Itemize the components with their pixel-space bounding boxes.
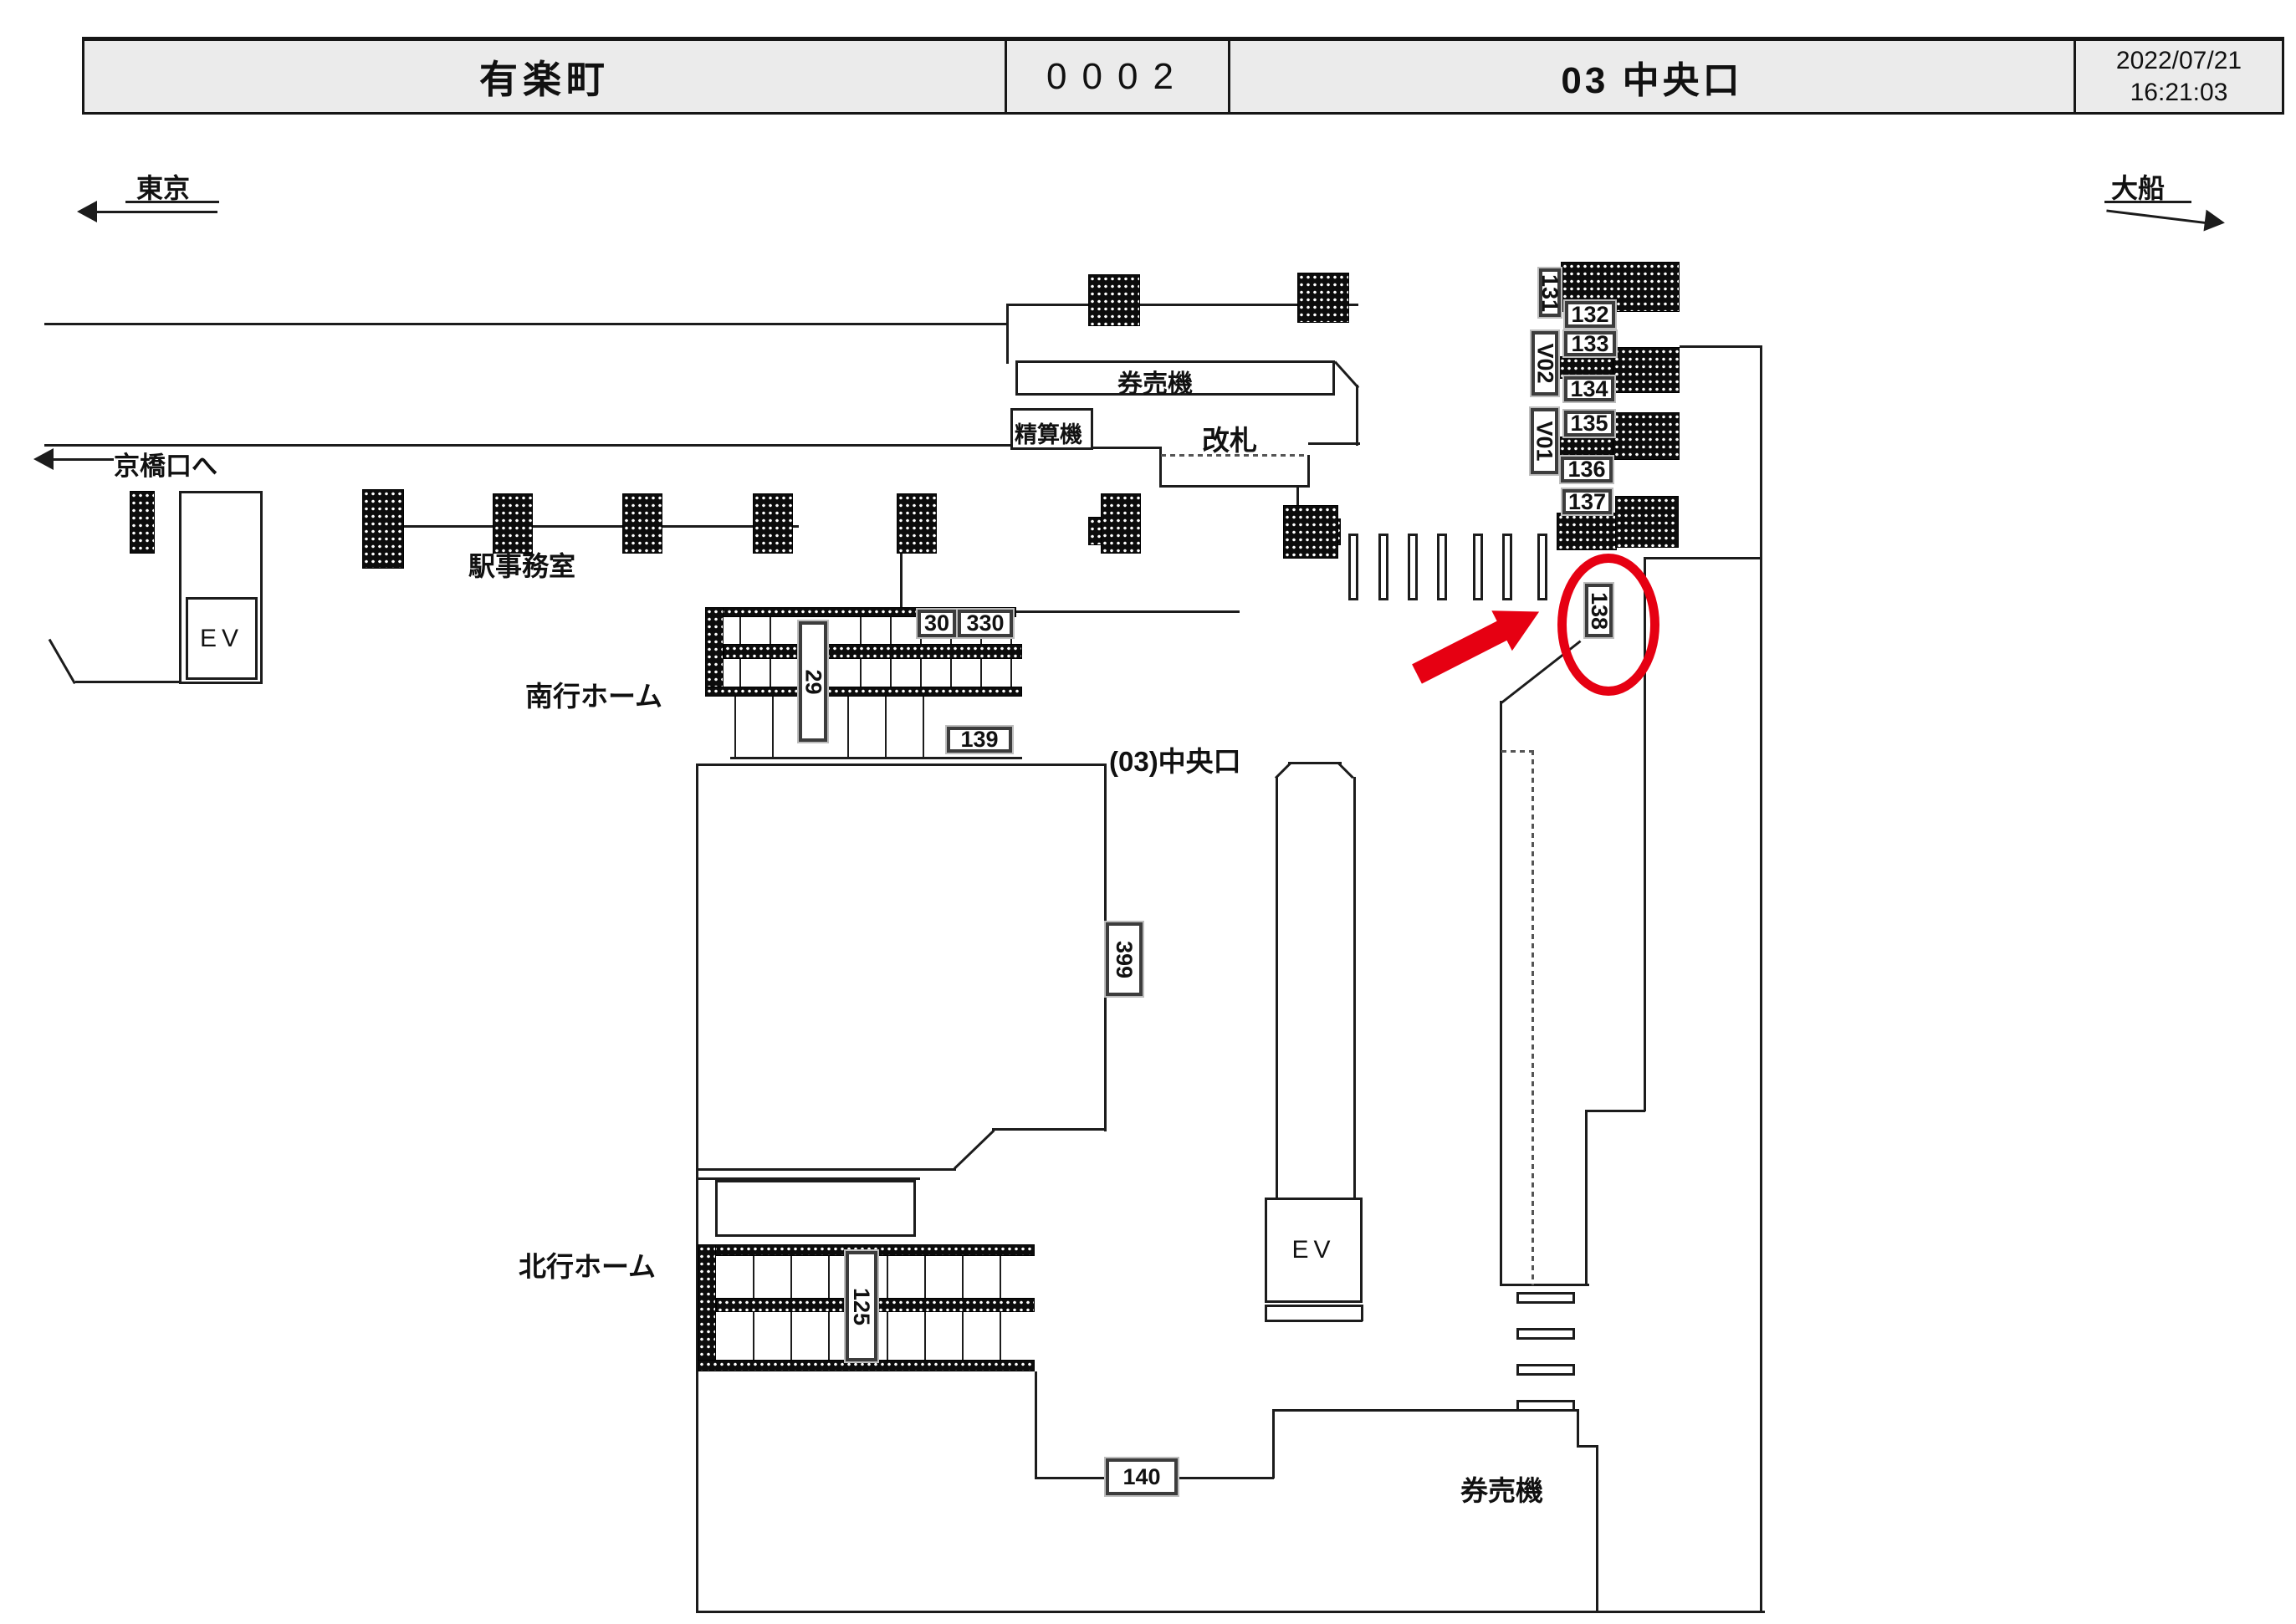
grid-line [770,659,771,687]
grid-line [890,617,892,644]
hatch-pillar [1613,412,1680,460]
wall [1307,455,1310,488]
area-label: 精算機 [1015,416,1082,449]
ad-box-134: 134 [1564,376,1614,401]
wall [1500,1284,1589,1286]
area-label: 南行ホーム [525,674,662,714]
hatch-pillar [753,493,793,554]
ad-box-140: 140 [1106,1458,1178,1495]
grid-line [920,659,922,687]
wall [1577,1445,1598,1448]
wall [401,525,799,528]
wall [730,757,1022,759]
wall [1035,1371,1037,1478]
grid-line [828,1312,830,1360]
ad-box-136: 136 [1561,457,1613,483]
wall-diagonal [49,639,76,684]
grid-line [962,1312,964,1360]
ticket-gate-slat [1378,534,1388,600]
wall [1353,777,1356,1199]
grid-line [962,1256,964,1298]
hatch-pillar [362,489,404,569]
highlight-arrow-shaft [1412,620,1510,684]
header-bar: 有楽町 0002 03 中央口 2022/07/21 16:21:03 [82,37,2284,115]
hatch-pillar [897,493,937,554]
dotted-line [1532,750,1534,1285]
elevator-box: EV [1265,1198,1363,1303]
grid-line [1010,659,1012,687]
area-label: 券売機 [1117,363,1193,400]
grid-line [828,1256,830,1298]
area-label: (03)中央口 [1109,739,1241,779]
grid-line [772,697,774,757]
grid-line [980,659,982,687]
ad-box-125: 125 [846,1251,877,1361]
ad-box-29: 29 [799,621,827,742]
gate-title: 03 中央口 [1230,41,2076,112]
wall [1272,1411,1275,1478]
grid-line [753,1312,754,1360]
area-label: 駅事務室 [468,545,575,584]
grid-line [1000,1312,1001,1360]
hatch-pillar [724,644,1022,659]
wall [696,1611,1765,1613]
ad-box-132: 132 [1565,301,1615,328]
hatch-pillar [1283,505,1338,559]
grid-line [924,1312,926,1360]
ad-box-30: 30 [918,610,956,637]
grid-line [790,1256,792,1298]
wall [2104,201,2191,203]
grid-line [770,617,771,644]
wall [1680,345,1762,348]
wall [1159,447,1162,488]
wall [1361,1305,1363,1321]
wall [696,1168,956,1171]
wall [75,681,182,683]
wall [1356,385,1358,446]
ad-box-135: 135 [1564,411,1614,437]
wall-diagonal [954,1130,995,1170]
grid-line [790,1312,792,1360]
area-label: 券売機 [1460,1468,1543,1509]
wall [1500,701,1502,1286]
escalator-slat [1516,1400,1575,1412]
ticket-gate-slat [1408,534,1418,600]
grid-line [753,1256,754,1298]
wall [1276,777,1278,1199]
grid-line [860,659,862,687]
grid-line [847,697,849,757]
ticket-gate-slat [1502,534,1512,600]
wall [1178,1477,1274,1479]
wall [992,1128,1106,1131]
hatch-pillar [1615,496,1679,548]
wall [125,201,219,203]
grid-line [923,697,924,757]
ticket-gate-slat [1537,534,1547,600]
ad-box-133: 133 [1564,331,1616,356]
wall [1585,1110,1588,1286]
highlight-circle [1557,554,1659,696]
ad-box-330: 330 [958,610,1013,637]
ad-box-131: 131 [1539,268,1561,317]
page-code: 0002 [1007,41,1230,112]
grid-line [739,617,741,644]
grid-line [950,659,952,687]
arrow-left-line [90,211,217,213]
structure-outline [715,1180,916,1237]
station-title: 有楽町 [84,41,1007,112]
date-text: 2022/07/21 [2116,45,2242,77]
wall [696,763,698,1613]
wall [696,763,1106,766]
wall-diagonal [1337,762,1354,779]
wall [1265,1305,1267,1321]
elevator-box: EV [186,597,258,680]
hatch-pillar [130,491,155,554]
hatch-pillar [705,687,1022,697]
exit-arrow-line [45,458,114,461]
ad-box-399: 399 [1106,922,1143,996]
wall [1644,557,1762,559]
ad-box-V02: V02 [1532,331,1558,396]
escalator-slat [1516,1328,1575,1340]
wall [1308,442,1360,445]
ticket-gate-slat [1473,534,1483,600]
exit-left-label: 京橋口へ [114,445,217,483]
time-text: 16:21:03 [2130,77,2228,109]
wall [1035,1477,1107,1479]
wall [1265,1320,1363,1322]
arrow-right-line [2106,209,2209,224]
hatch-pillar [705,607,724,697]
hatch-pillar [622,493,662,554]
grid-line [860,617,862,644]
wall [1006,304,1009,364]
hatch-pillar [1101,493,1141,554]
hatch-pillar [698,1244,716,1371]
wall [1159,485,1310,488]
ad-box-V01: V01 [1531,408,1558,474]
grid-line [1000,1256,1001,1298]
ticket-gate-slat [1348,534,1358,600]
ad-box-137: 137 [1562,489,1612,514]
wall [1585,1110,1645,1112]
hatch-pillar [1613,347,1680,393]
hatch-pillar [698,1360,1035,1371]
hatch-pillar [1088,274,1140,326]
station-map-page: 有楽町 0002 03 中央口 2022/07/21 16:21:03 東京 大… [0,0,2296,1624]
wall [1265,1305,1363,1307]
grid-line [739,659,741,687]
wall-diagonal [1334,360,1359,388]
escalator-slat [1516,1292,1575,1304]
grid-line [887,1256,888,1298]
hatch-pillar [1557,513,1617,550]
grid-line [885,697,887,757]
hatch-pillar [1297,273,1349,323]
ad-box-139: 139 [947,727,1012,753]
wall [1760,345,1762,1613]
arrow-left-icon [77,201,97,222]
wall-diagonal [1275,763,1291,779]
dotted-line [1501,750,1533,753]
grid-line [887,1312,888,1360]
datetime: 2022/07/21 16:21:03 [2076,41,2282,112]
grid-line [924,1256,926,1298]
wall [1288,762,1342,764]
area-label: 北行ホーム [519,1244,656,1284]
exit-arrow-icon [33,448,54,470]
wall [44,444,1014,447]
wall [1092,447,1161,449]
arrow-right-icon [2204,210,2227,234]
area-label: 改札 [1202,418,1257,458]
wall [1596,1445,1598,1612]
wall [1577,1409,1579,1448]
ticket-gate-slat [1437,534,1447,600]
grid-line [890,659,892,687]
escalator-slat [1516,1364,1575,1376]
grid-line [734,697,736,757]
wall [44,323,1008,325]
